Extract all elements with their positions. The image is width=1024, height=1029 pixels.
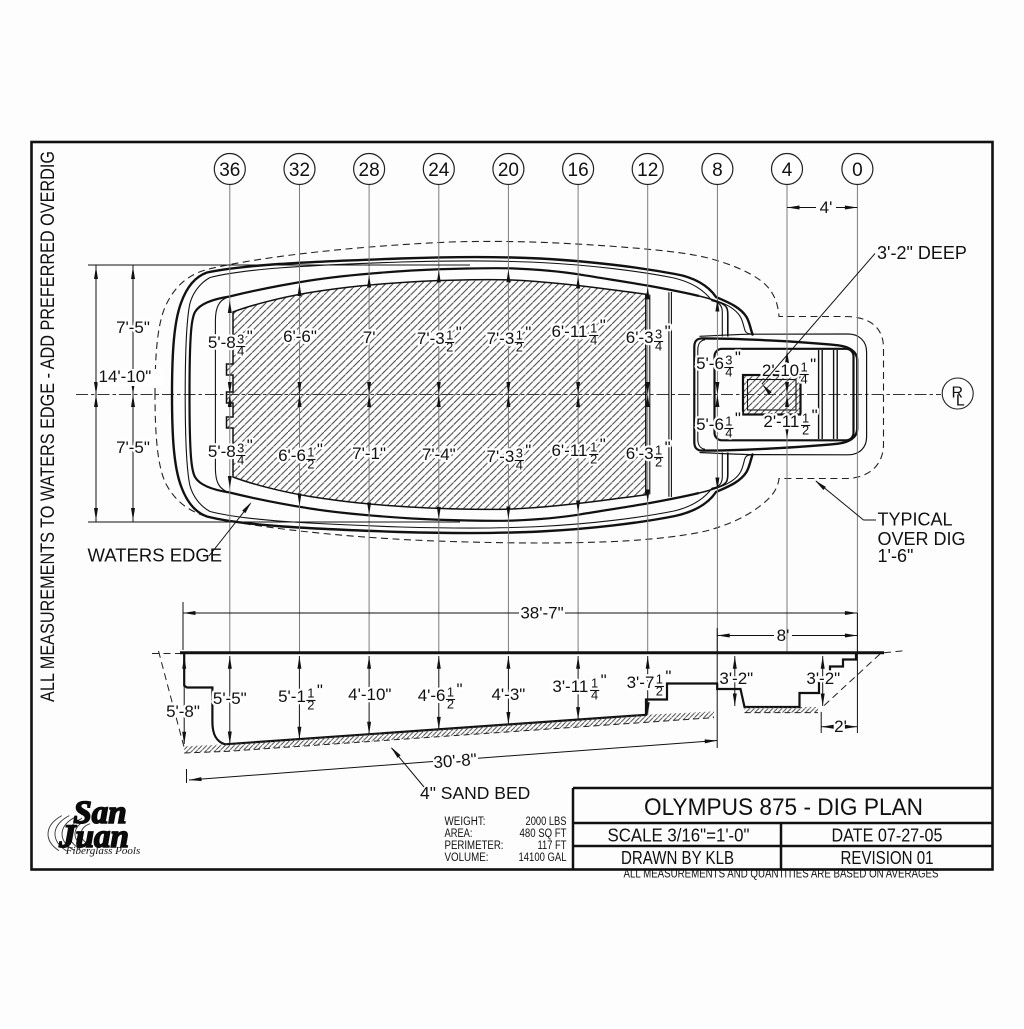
svg-text:": " xyxy=(810,355,816,374)
svg-text:2: 2 xyxy=(307,457,314,472)
svg-text:24: 24 xyxy=(428,160,450,181)
svg-text:2: 2 xyxy=(516,340,523,355)
svg-text:8': 8' xyxy=(777,626,790,645)
svg-text:4: 4 xyxy=(725,365,732,380)
svg-text:": " xyxy=(247,436,253,455)
svg-text:": " xyxy=(317,440,323,459)
svg-text:4: 4 xyxy=(590,333,597,348)
svg-text:": " xyxy=(735,409,741,428)
svg-text:5'-5": 5'-5" xyxy=(213,689,247,708)
svg-text:6'-6": 6'-6" xyxy=(283,327,317,346)
svg-text:4: 4 xyxy=(801,372,808,387)
svg-text:REVISION 01: REVISION 01 xyxy=(841,847,934,868)
svg-text:": " xyxy=(665,322,671,341)
svg-text:6'-11: 6'-11 xyxy=(551,441,587,460)
svg-text:6'-11: 6'-11 xyxy=(551,322,587,341)
svg-text:7'-1": 7'-1" xyxy=(352,444,386,463)
svg-text:3'-2": 3'-2" xyxy=(719,669,753,688)
svg-text:2: 2 xyxy=(656,684,663,699)
svg-text:2: 2 xyxy=(307,698,314,713)
svg-text:OLYMPUS 875 - DIG PLAN: OLYMPUS 875 - DIG PLAN xyxy=(644,794,923,821)
svg-text:": " xyxy=(601,671,607,690)
svg-text:2000 LBS: 2000 LBS xyxy=(526,816,567,828)
svg-text:4: 4 xyxy=(782,160,793,181)
svg-text:PERIMETER:: PERIMETER: xyxy=(445,840,504,852)
svg-text:4': 4' xyxy=(820,198,833,217)
svg-text:ALL MEASUREMENTS TO WATERS EDG: ALL MEASUREMENTS TO WATERS EDGE - ADD PR… xyxy=(38,151,59,702)
svg-text:2: 2 xyxy=(446,340,453,355)
svg-text:3'-7: 3'-7 xyxy=(627,673,655,692)
svg-text:VOLUME:: VOLUME: xyxy=(445,852,489,864)
svg-text:4'-6: 4'-6 xyxy=(418,686,446,705)
svg-text:4'-10": 4'-10" xyxy=(348,685,391,704)
svg-text:SCALE 3/16"=1'-0": SCALE 3/16"=1'-0" xyxy=(608,825,750,846)
svg-text:7'-3: 7'-3 xyxy=(417,329,445,348)
svg-text:7'-5": 7'-5" xyxy=(116,318,150,337)
svg-text:2: 2 xyxy=(802,423,809,438)
svg-text:3'-11: 3'-11 xyxy=(552,677,588,696)
svg-text:5'-8": 5'-8" xyxy=(166,702,200,721)
svg-text:14100 GAL: 14100 GAL xyxy=(519,852,567,864)
svg-text:4: 4 xyxy=(655,339,662,354)
svg-text:1'-6": 1'-6" xyxy=(878,546,914,566)
svg-text:5'-8: 5'-8 xyxy=(208,333,236,352)
svg-text:7'-3: 7'-3 xyxy=(486,329,514,348)
svg-text:5'-1: 5'-1 xyxy=(278,687,306,706)
svg-text:WATERS EDGE: WATERS EDGE xyxy=(88,545,223,566)
svg-text:2: 2 xyxy=(655,455,662,470)
svg-text:7': 7' xyxy=(363,328,376,347)
svg-text:": " xyxy=(600,435,606,454)
svg-text:WEIGHT:: WEIGHT: xyxy=(445,816,486,828)
svg-text:20: 20 xyxy=(498,160,519,181)
svg-text:32: 32 xyxy=(289,160,310,181)
svg-text:2: 2 xyxy=(590,452,597,467)
svg-text:7'-5": 7'-5" xyxy=(116,438,150,457)
svg-text:2: 2 xyxy=(447,697,454,712)
svg-text:4: 4 xyxy=(237,453,244,468)
svg-text:4: 4 xyxy=(591,688,598,703)
svg-text:": " xyxy=(317,681,323,700)
svg-text:8: 8 xyxy=(712,160,723,181)
svg-text:": " xyxy=(600,316,606,335)
svg-text:": " xyxy=(247,327,253,346)
svg-text:480 SQ FT: 480 SQ FT xyxy=(520,828,567,840)
svg-text:38'-7": 38'-7" xyxy=(520,604,563,623)
svg-text:2': 2' xyxy=(834,717,847,736)
svg-text:36: 36 xyxy=(219,160,240,181)
svg-text:6'-3: 6'-3 xyxy=(626,328,654,347)
svg-text:16: 16 xyxy=(568,160,589,181)
svg-text:2'-11: 2'-11 xyxy=(763,412,799,431)
svg-text:": " xyxy=(665,438,671,457)
svg-text:4: 4 xyxy=(725,426,732,441)
svg-text:": " xyxy=(525,441,531,460)
svg-text:L: L xyxy=(956,392,965,409)
svg-text:": " xyxy=(525,323,531,342)
svg-text:6'-3: 6'-3 xyxy=(626,444,654,463)
svg-text:DRAWN BY KLB: DRAWN BY KLB xyxy=(621,847,734,868)
svg-text:5'-8: 5'-8 xyxy=(208,442,236,461)
svg-text:0: 0 xyxy=(852,160,863,181)
svg-text:30'-8": 30'-8" xyxy=(433,750,478,772)
svg-text:7'-3: 7'-3 xyxy=(486,447,514,466)
svg-text:28: 28 xyxy=(359,160,380,181)
svg-text:TYPICAL: TYPICAL xyxy=(878,510,953,530)
svg-text:3'-2" DEEP: 3'-2" DEEP xyxy=(877,243,967,263)
svg-text:": " xyxy=(665,667,671,686)
svg-text:3'-2": 3'-2" xyxy=(806,669,840,688)
svg-text:": " xyxy=(457,680,463,699)
svg-text:12: 12 xyxy=(637,160,658,181)
svg-text:5'-6: 5'-6 xyxy=(696,415,724,434)
svg-text:AREA:: AREA: xyxy=(445,828,473,840)
svg-text:5'-6: 5'-6 xyxy=(696,354,724,373)
svg-text:4: 4 xyxy=(516,458,523,473)
svg-text:117 FT: 117 FT xyxy=(538,840,567,852)
svg-text:": " xyxy=(456,323,462,342)
svg-text:": " xyxy=(812,406,818,425)
svg-text:": " xyxy=(735,348,741,367)
svg-text:ALL MEASUREMENTS AND QUANTITIE: ALL MEASUREMENTS AND QUANTITIES ARE BASE… xyxy=(624,869,939,881)
svg-text:4: 4 xyxy=(237,344,244,359)
svg-text:14'-10": 14'-10" xyxy=(99,367,152,386)
svg-text:DATE 07-27-05: DATE 07-27-05 xyxy=(832,825,943,846)
svg-text:6'-6: 6'-6 xyxy=(278,446,306,465)
svg-text:7'-4": 7'-4" xyxy=(422,445,456,464)
svg-text:4" SAND BED: 4" SAND BED xyxy=(420,783,530,803)
svg-text:Fiberglass Pools: Fiberglass Pools xyxy=(65,845,140,857)
svg-text:4'-3": 4'-3" xyxy=(491,685,525,704)
